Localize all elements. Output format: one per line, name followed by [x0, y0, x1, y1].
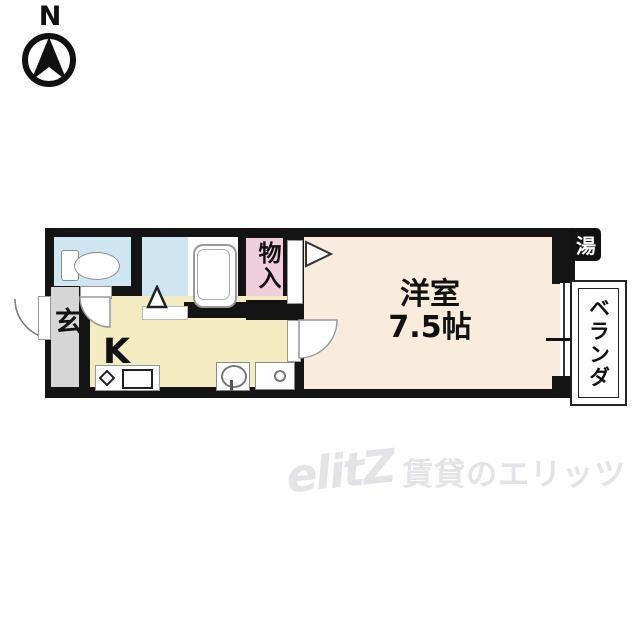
veranda-inner-border: ベランダ — [578, 288, 619, 398]
entrance-label: 玄 — [55, 300, 82, 339]
western-room-name: 洋室 — [400, 277, 460, 312]
washing-machine-drain-stem — [230, 380, 233, 391]
kitchen-sink-icon — [122, 369, 153, 389]
north-label: N — [22, 4, 78, 30]
water-heater-label: 湯 — [576, 230, 596, 259]
entry-door-leaf — [38, 296, 51, 340]
utility-outlet-icon — [274, 370, 286, 382]
folding-door-icon — [146, 285, 168, 309]
closet-door-leaf — [287, 240, 303, 304]
veranda-label: ベランダ — [584, 297, 614, 389]
kitchen-label: K — [103, 332, 130, 372]
washing-machine-drain-icon — [221, 365, 247, 388]
closet-door-direction-icon — [304, 240, 334, 268]
western-room-size: 7.5帖 — [388, 310, 471, 345]
water-heater-badge: 湯 — [571, 228, 601, 261]
veranda: ベランダ — [570, 280, 627, 406]
toilet-bowl-icon — [74, 252, 120, 280]
north-compass: N — [22, 4, 78, 96]
watermark-text: 賃貸のエリッツ — [402, 449, 626, 494]
hall-door-swing-arc — [79, 296, 112, 329]
closet-label: 物入 — [250, 241, 283, 291]
stove-burner-icon — [99, 370, 115, 386]
western-room-door-swing-arc — [298, 319, 339, 360]
window-pane-line — [563, 283, 565, 376]
watermark: elitZ 賃貸のエリッツ — [286, 444, 626, 498]
watermark-logo: elitZ — [283, 438, 396, 503]
western-room-label: 洋室 7.5帖 — [350, 278, 510, 344]
bathtub-inner-line — [197, 249, 230, 300]
north-arrow-icon — [22, 30, 76, 90]
